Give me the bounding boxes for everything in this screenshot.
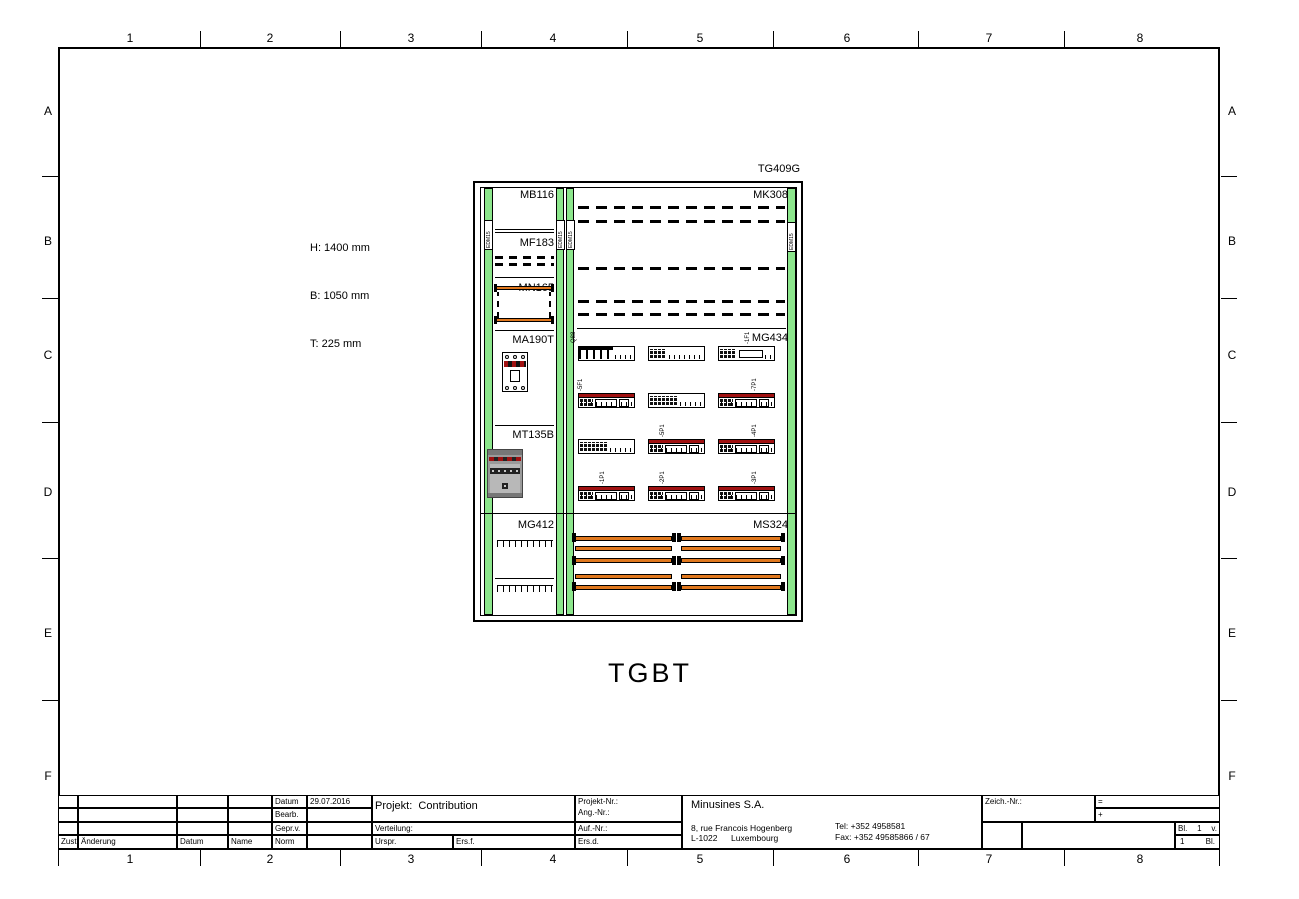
grid-col-label: 8 [1125,852,1155,866]
grid-row-label: A [40,104,56,118]
bl-label: Bl. [1178,824,1187,833]
wiring-duct-dashed [495,256,554,259]
v-label: v. [1211,824,1217,833]
busbar-support [677,556,681,565]
busbar [681,546,781,551]
section-line [577,328,786,329]
wiring-duct-dashed [578,300,785,303]
busbar-support [672,533,676,542]
din-device-group [578,486,635,501]
projekt-nr-label: Projekt-Nr.: [578,797,679,806]
dimension-width: B: 1050 mm [310,288,370,304]
grid-col-label: 5 [685,852,715,866]
urspr-cell: Urspr. [372,835,453,849]
terminal-dot [521,355,525,359]
din-device-group [578,346,635,361]
device-red-stripe [649,440,704,444]
terminal-dot [505,355,509,359]
bl-label: Bl. [1206,837,1215,847]
section-label-mg434: MG434 [688,332,788,344]
section-label-mg412: MG412 [495,519,554,531]
grid-tick [42,298,58,299]
project-cell: Projekt: Contribution [372,795,575,822]
busbar-support [677,582,681,591]
device-tag: -2P1 [660,471,666,484]
grid-col-label: 4 [538,852,568,866]
project-numbers-cell: Projekt-Nr.: Ang.-Nr.: [575,795,682,822]
circuit-breaker-symbol [502,352,528,392]
busbar-support [781,556,785,565]
section-line [495,425,554,426]
company-tel: Tel: +352 4958581 [835,821,905,831]
sheet-total-cell: 1 Bl. [1175,835,1220,849]
empty-cell [1022,822,1175,849]
grid-tick [481,31,482,47]
auf-nr-cell: Auf.-Nr.: [575,822,682,835]
mounting-rail [566,188,574,615]
din-device-group [648,486,705,501]
breaker-window [510,370,520,382]
revision-cell [228,808,272,822]
grid-tick [1219,850,1220,866]
device-tag: -5P1 [660,424,666,437]
grid-row-label: C [40,348,56,362]
grid-tick [918,850,919,866]
grid-col-label: 7 [974,852,1004,866]
grid-col-label: 3 [396,852,426,866]
section-label-mb116: MB116 [495,189,554,201]
terminal-dot [521,386,525,390]
breaker-terminal [502,483,508,489]
device-comb [610,448,634,452]
grid-tick [42,176,58,177]
wiring-duct-dashed [495,263,554,266]
grid-tick [200,850,201,866]
busbar [681,585,781,590]
revision-cell [228,795,272,808]
approval-norm-label: Norm [272,835,307,849]
device-comb [721,495,774,499]
grid-tick [340,31,341,47]
molded-case-breaker [487,449,523,498]
section-line-full [481,513,796,514]
company-street: 8, rue Francois Hogenberg [691,823,792,833]
terminal-dot [513,355,517,359]
grid-col-label: 1 [115,31,145,45]
grid-row-label: E [40,626,56,640]
rail-label: EDM15 [566,220,575,250]
revision-cell [58,822,78,835]
breaker-terminal [514,468,520,474]
device-comb [651,448,704,452]
device-red-stripe [579,487,634,491]
grid-tick [42,558,58,559]
breaker-bottom-band [488,493,522,497]
section-label-mk308: MK308 [688,189,788,201]
grid-tick [627,31,628,47]
rail-label: EDM15 [556,220,565,250]
revision-zust-label: Zust. [58,835,78,849]
device-tag: -1F1 [745,332,751,344]
din-device-group [648,393,705,408]
copper-bar [495,286,554,290]
busbar-support [781,533,785,542]
device-comb [581,402,634,406]
busbar [575,574,672,579]
busbar-support [672,582,676,591]
breaker-red-stripe [489,457,521,461]
device-comb [680,402,704,406]
approval-bearb-label: Bearb. [272,808,307,822]
company-city: Luxembourg [731,833,778,843]
device-red-stripe [719,394,774,398]
device-tag: -5F1 [578,379,584,391]
dimension-height: H: 1400 mm [310,240,370,256]
grid-row-label: F [40,769,56,783]
wiring-duct-dashed [578,220,785,223]
revision-aenderung-label: Änderung [78,835,177,849]
project-label: Projekt: [375,800,412,812]
revision-cell [177,795,228,808]
device-tag: -4P1 [752,424,758,437]
busbar-support [781,582,785,591]
sheet-count-cell: Bl. 1 v. [1175,822,1220,835]
din-device-group [648,346,705,361]
grid-tick [200,31,201,47]
rail-label-text: EDM15 [789,233,795,250]
busbar-support [572,582,576,591]
company-name: Minusines S.A. [691,799,764,811]
din-device-group [718,486,775,501]
company-fax: Fax: +352 49585866 / 67 [835,832,930,842]
wiring-duct-dashed [578,267,785,270]
total-sheets: 1 [1180,837,1184,847]
grid-row-label: E [1224,626,1240,640]
busbar [575,546,672,551]
device-red-stripe [649,487,704,491]
grid-tick [42,422,58,423]
mounting-rail [484,188,493,615]
project-value: Contribution [418,800,477,812]
grid-tick [1221,176,1237,177]
busbar [681,536,781,541]
grid-tick [627,850,628,866]
revision-cell [78,795,177,808]
copper-bar [495,318,554,322]
device-red-stripe [719,440,774,444]
grid-tick [1221,298,1237,299]
wiring-duct-dashed [578,313,785,316]
terminal-grid [580,442,608,451]
grid-tick [773,850,774,866]
device-comb [721,402,774,406]
grid-col-label: 4 [538,31,568,45]
revision-cell [177,822,228,835]
mounting-rail [556,188,564,615]
shelf-line [495,232,554,233]
module-dashed-edge [549,292,551,318]
grid-tick [42,700,58,701]
device-modules [579,350,613,359]
breaker-body [490,464,520,493]
device-red-stripe [579,394,634,398]
revision-cell [58,795,78,808]
terminal-dot [505,386,509,390]
busbar-support [677,533,681,542]
grid-col-label: 6 [832,852,862,866]
grid-tick [1221,422,1237,423]
din-device-group [718,439,775,454]
breaker-band [504,361,526,367]
device-tag: -1P1 [600,471,606,484]
cabinet-title: TGBT [608,658,692,689]
din-device-group [718,393,775,408]
revision-cell [228,822,272,835]
dimension-depth: T: 225 mm [310,336,370,352]
grid-row-label: C [1224,348,1240,362]
grid-row-label: B [1224,234,1240,248]
busbar [575,558,672,563]
terminal-strip [497,585,553,592]
din-device-group [718,346,775,361]
grid-row-label: D [1224,485,1240,499]
grid-tick [1221,700,1237,701]
breaker-top-band [488,450,522,455]
equals-cell: = [1095,795,1220,808]
ersf-cell: Ers.f. [453,835,575,849]
grid-row-label: F [1224,769,1240,783]
rail-label: EDM15 [484,220,493,250]
cabinet-dimensions: H: 1400 mm B: 1050 mm T: 225 mm [310,208,370,384]
grid-row-label: D [40,485,56,499]
device-tag: -Q88 [571,332,577,345]
grid-tick [1064,31,1065,47]
busbar-support [672,556,676,565]
empty-cell [982,822,1022,849]
verteilung-cell: Verteilung: [372,822,575,835]
device-tag: -3P1 [752,471,758,484]
busbar [681,558,781,563]
grid-col-label: 5 [685,31,715,45]
rail-label: EDM15 [787,222,796,252]
device-module [739,350,763,358]
section-label-ma190t: MA190T [495,334,554,346]
terminal-strip [497,540,553,547]
drawing-sheet: 1 2 3 4 5 6 7 8 1 2 3 4 5 6 7 8 A B C D … [0,0,1299,899]
revision-cell [177,808,228,822]
device-comb [765,355,774,359]
grid-col-label: 8 [1125,31,1155,45]
section-line [495,578,554,579]
ang-nr-label: Ang.-Nr.: [578,808,679,817]
copper-bar-end [494,316,497,324]
busbar-support [572,556,576,565]
sheet-number: 1 [1197,824,1201,833]
approval-cell [307,808,372,822]
approval-cell [307,835,372,849]
terminal-dot [513,386,517,390]
copper-bar-end [494,284,497,292]
grid-row-label: A [1224,104,1240,118]
section-line [495,330,554,331]
grid-col-label: 2 [255,31,285,45]
revision-name-label: Name [228,835,272,849]
plus-cell: + [1095,808,1220,822]
grid-col-label: 1 [115,852,145,866]
grid-tick [773,31,774,47]
revision-cell [58,808,78,822]
grid-col-label: 3 [396,31,426,45]
device-red-stripe [719,487,774,491]
terminal-grid [650,396,678,405]
rail-label-text: EDM15 [568,231,574,248]
section-label-ms324: MS324 [688,519,788,531]
rail-label-text: EDM15 [558,231,564,248]
busbar [681,574,781,579]
grid-tick [1064,850,1065,866]
cabinet-tag: TG409G [700,163,800,175]
approval-datum-label: Datum [272,795,307,808]
terminal-grid [650,349,666,358]
copper-bar-end [551,284,554,292]
grid-tick [918,31,919,47]
revision-cell [78,808,177,822]
approval-cell [307,822,372,835]
title-block: Zust. Änderung Datum Name Datum Bearb. G… [58,795,1220,849]
grid-row-label: B [40,234,56,248]
company-cell: Minusines S.A. 8, rue Francois Hogenberg… [682,795,982,849]
device-comb [651,495,704,499]
device-tag: -7P1 [752,378,758,391]
device-comb [721,448,774,452]
grid-col-label: 7 [974,31,1004,45]
grid-col-label: 2 [255,852,285,866]
device-comb [581,495,634,499]
ersd-cell: Ers.d. [575,835,682,849]
busbar [575,536,672,541]
approval-gepr-label: Gepr.v. [272,822,307,835]
revision-datum-label: Datum [177,835,228,849]
din-device-group [578,439,635,454]
din-device-group [578,393,635,408]
grid-col-label: 6 [832,31,862,45]
din-device-group [648,439,705,454]
device-comb [615,355,634,359]
grid-tick [1221,558,1237,559]
grid-tick [340,850,341,866]
grid-tick [481,850,482,866]
copper-bar-end [551,316,554,324]
section-line [495,277,554,278]
shelf-line [495,229,554,230]
revision-cell [78,822,177,835]
mounting-rail [787,188,796,615]
module-dashed-edge [497,292,499,318]
device-comb [669,355,704,359]
zeich-nr-cell: Zeich.-Nr.: [982,795,1095,822]
approval-datum-value: 29.07.2016 [307,795,372,808]
busbar-support [572,533,576,542]
terminal-grid [720,349,736,358]
section-label-mt135b: MT135B [495,429,554,441]
wiring-duct-dashed [578,206,785,209]
rail-label-text: EDM15 [486,231,492,248]
grid-tick [58,850,59,866]
company-postal: L-1022 [691,833,717,843]
busbar [575,585,672,590]
section-label-mf183: MF183 [495,237,554,249]
